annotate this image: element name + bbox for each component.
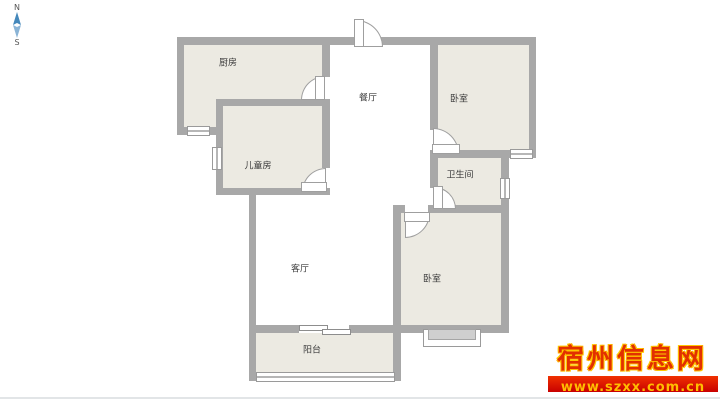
wall-kitchen-right (322, 44, 330, 77)
kitchen-label: 厨房 (219, 56, 237, 69)
bedroom-top-window (510, 149, 533, 159)
bedroom-bottom-door-leaf (404, 212, 430, 222)
wall-left-outer (177, 37, 184, 135)
watermark-url: www.szxx.com.cn (561, 380, 705, 392)
children-room-label: 儿童房 (244, 159, 271, 172)
watermark-site-name: 宿州信息网 (546, 343, 718, 376)
bathroom-door-leaf (433, 186, 443, 209)
children-room-window (212, 147, 222, 170)
living-room-label: 客厅 (291, 262, 309, 275)
wall-bathroom-left (430, 152, 438, 188)
wall-top-right (381, 37, 536, 45)
children-room-door-leaf (301, 182, 327, 192)
kitchen-floor-extension (184, 100, 216, 127)
bathroom-window (500, 178, 510, 199)
balcony-window (256, 372, 395, 382)
compass: N S (8, 3, 26, 47)
wall-bedroom-bottom-right (501, 205, 509, 333)
compass-south-label: S (8, 38, 26, 47)
entry-door-leaf (354, 19, 364, 47)
floorplan-canvas: N S (0, 0, 720, 405)
bedroom-bottom-label: 卧室 (423, 272, 441, 285)
kitchen-door-leaf (315, 76, 325, 100)
bay-window-inner (428, 329, 476, 340)
compass-north-label: N (8, 3, 26, 12)
wall-living-left (249, 195, 256, 381)
watermark-url-banner: www.szxx.com.cn (548, 376, 718, 392)
bedroom-top-label: 卧室 (450, 92, 468, 105)
wall-living-bottom-right (349, 325, 401, 333)
kitchen-window (187, 126, 210, 136)
compass-needle-icon (10, 12, 24, 38)
wall-children-right (322, 99, 330, 168)
bottom-divider (0, 397, 720, 399)
bedroom-top-door-leaf (432, 144, 460, 154)
wall-living-bottom-left (249, 325, 299, 333)
wall-children-top (216, 99, 330, 106)
wall-dining-bedroom-separator (430, 37, 438, 130)
balcony-floor (256, 333, 393, 373)
balcony-label: 阳台 (303, 343, 321, 356)
balcony-sliding-door-panel-2 (322, 329, 351, 335)
wall-right-outer (529, 37, 536, 158)
dining-label: 餐厅 (359, 91, 377, 104)
wall-bedroom-bottom-left (393, 205, 401, 381)
bathroom-label: 卫生间 (446, 168, 473, 181)
